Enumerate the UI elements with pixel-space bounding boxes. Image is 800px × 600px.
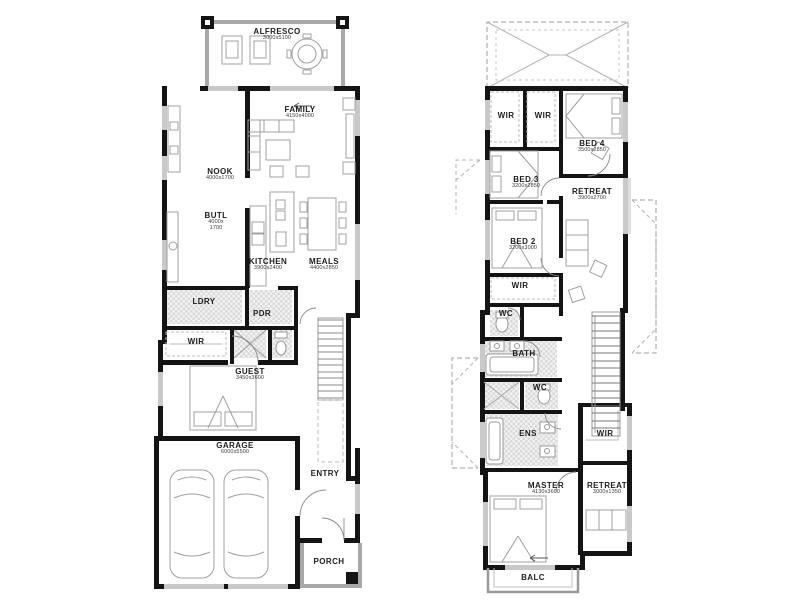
ground-floor-drawing (150, 10, 370, 595)
balcony-walls (488, 568, 578, 592)
ground-floor-plan: ALFRESCO 3000x5100 FAMILY 4150x4000 NOOK… (150, 10, 370, 595)
first-floor-plan: WIR WIR BED 4 3500x2850 BED 3 3200x2850 … (450, 10, 670, 595)
stairs (318, 318, 343, 462)
first-floor-drawing (450, 10, 670, 595)
tiled-floors (166, 290, 292, 358)
family-door-arrow-icon (294, 103, 312, 109)
balcony-door-arrow-icon (530, 555, 548, 561)
floorplan-page: ALFRESCO 3000x5100 FAMILY 4150x4000 NOOK… (0, 0, 800, 600)
stairs (592, 312, 620, 436)
